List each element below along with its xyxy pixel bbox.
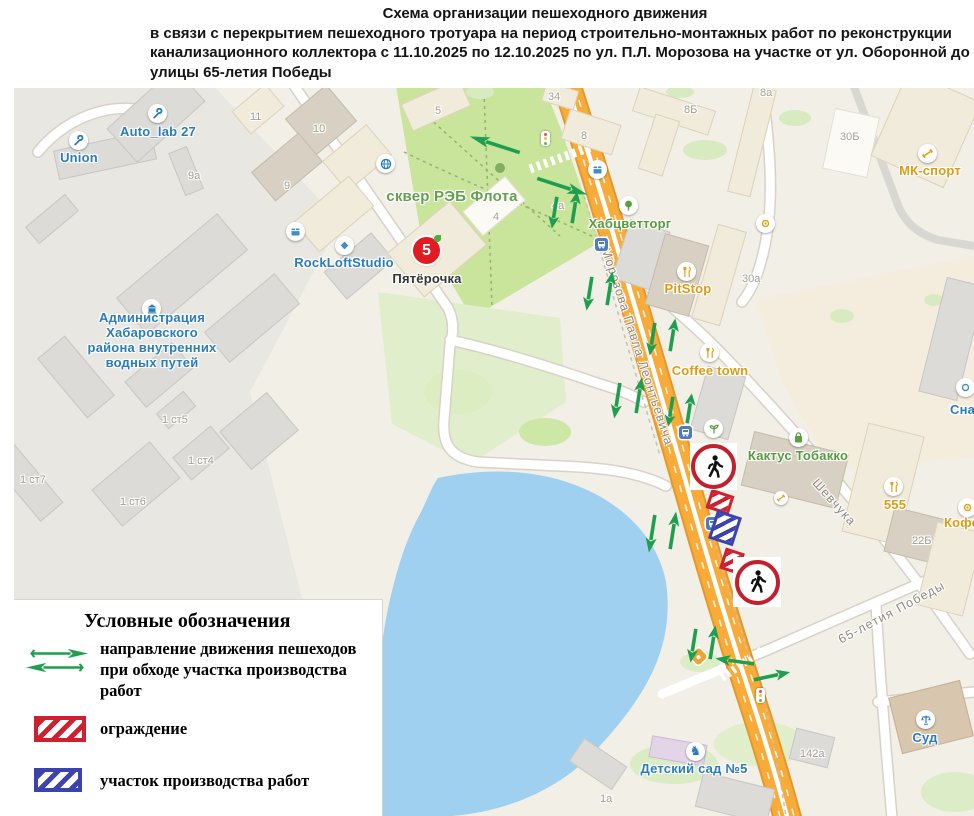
dumbbell-icon[interactable] xyxy=(918,144,937,163)
page: { "title": { "line1": "Схема организации… xyxy=(0,0,974,816)
building-number: 30Б xyxy=(840,131,859,143)
traffic-light-icon xyxy=(541,131,550,146)
poi-label-rockloft[interactable]: RockLoftStudio xyxy=(284,255,404,270)
traffic-light-icon xyxy=(756,688,765,703)
restaurant-icon[interactable] xyxy=(677,262,696,281)
title-line-2: в связи с перекрытием пешеходного тротуа… xyxy=(150,24,974,44)
map-canvas[interactable]: Морозова Павла Леонтьевича Шевчука 65-ле… xyxy=(14,88,974,816)
park-label[interactable]: сквер РЭБ Флота xyxy=(382,189,522,204)
poi-label-pyaterochka[interactable]: Пятёрочка xyxy=(377,271,477,286)
poi-icon[interactable] xyxy=(956,378,974,397)
poi-label-autolab[interactable]: Auto_lab 27 xyxy=(108,124,208,139)
building-number: 1 ст6 xyxy=(120,496,146,508)
walking-person-icon xyxy=(701,454,727,480)
building-number: 34 xyxy=(548,91,560,103)
legend-workzone-swatch xyxy=(34,768,82,792)
title-line-3: канализационного коллектора с 11.10.2025… xyxy=(150,43,974,63)
route-arrow-right-icon xyxy=(30,646,88,657)
title-line-1: Схема организации пешеходного движения xyxy=(195,4,895,24)
building-number: 1 ст7 xyxy=(20,474,46,486)
package-icon[interactable] xyxy=(588,160,607,179)
package-icon[interactable] xyxy=(286,222,305,241)
poi-label-union[interactable]: Union xyxy=(49,150,109,165)
dumbbell-icon[interactable] xyxy=(774,491,788,505)
walking-person-icon xyxy=(744,569,770,595)
wrench-icon[interactable] xyxy=(148,104,167,123)
poi-label-pitstop[interactable]: PitStop xyxy=(648,281,728,296)
legend-fence-swatch xyxy=(34,716,86,742)
no-pedestrian-sign xyxy=(733,557,781,607)
scheme-title: Схема организации пешеходного движения в… xyxy=(0,0,974,82)
building-number: 142а xyxy=(800,748,824,760)
poi-label-detsad[interactable]: Детский сад №5 xyxy=(624,761,764,776)
bus-stop-icon[interactable] xyxy=(679,426,692,439)
building-number: 8Б xyxy=(684,104,697,116)
poi-label-habzvettorg[interactable]: Хабцветторг xyxy=(570,216,690,231)
building-number: 8а xyxy=(760,88,772,99)
poi-label-coffeetown[interactable]: Coffee town xyxy=(650,363,770,378)
building-number: 1 ст4 xyxy=(188,455,214,467)
building-number: 30а xyxy=(742,273,760,285)
globe-icon[interactable] xyxy=(376,154,395,173)
diamond-icon[interactable] xyxy=(335,236,354,255)
map-viewport[interactable]: Морозова Павла Леонтьевича Шевчука 65-ле… xyxy=(14,88,974,816)
restaurant-icon[interactable] xyxy=(700,343,719,362)
poi-label-kaktus[interactable]: Кактус Тобакко xyxy=(728,448,868,463)
plant-icon[interactable] xyxy=(704,419,723,438)
building-number: 5 xyxy=(435,105,441,117)
fountain-icon[interactable] xyxy=(756,214,775,233)
poi-label-sna[interactable]: Сна xyxy=(950,402,974,417)
poi-label-kofe[interactable]: Кофе xyxy=(944,515,974,530)
pyaterochka-icon[interactable]: 5 xyxy=(413,237,440,264)
building-number: 1 ст5 xyxy=(162,414,188,426)
poi-label-sud[interactable]: Суд xyxy=(895,730,955,745)
legend-fence-label: ограждение xyxy=(100,718,187,739)
legend-panel: Условные обозначения направление движени… xyxy=(14,600,382,816)
scales-icon[interactable] xyxy=(916,710,935,729)
tree-icon[interactable] xyxy=(619,196,638,215)
shopping-bag-icon[interactable] xyxy=(789,428,808,447)
legend-routes-label: направление движения пешеходов при обход… xyxy=(100,638,372,701)
legend-title: Условные обозначения xyxy=(84,610,290,633)
poi-label-admin[interactable]: Администрация Хабаровского района внутре… xyxy=(82,310,222,370)
building-number: 4 xyxy=(493,211,499,223)
title-line-4: улицы 65-летия Победы xyxy=(150,63,974,83)
building-number: 9а xyxy=(188,170,200,182)
building-number: 22Б xyxy=(912,535,931,547)
building-number: 1а xyxy=(600,793,612,805)
bus-stop-icon[interactable] xyxy=(595,238,608,251)
building-number: 9 xyxy=(284,180,290,192)
legend-workzone-label: участок производства работ xyxy=(100,770,309,791)
no-pedestrian-sign xyxy=(690,443,737,490)
restaurant-icon[interactable] xyxy=(884,477,903,496)
route-arrow-left-icon xyxy=(26,664,84,675)
building-number: 10 xyxy=(313,123,325,135)
poi-label-555[interactable]: 555 xyxy=(875,497,915,512)
building-number: 8 xyxy=(581,130,587,142)
rocking-horse-icon[interactable]: ♞ xyxy=(686,742,705,761)
poi-label-mksport[interactable]: МК-спорт xyxy=(880,163,974,178)
building-number: 11 xyxy=(250,111,261,123)
wrench-icon[interactable] xyxy=(69,131,88,150)
